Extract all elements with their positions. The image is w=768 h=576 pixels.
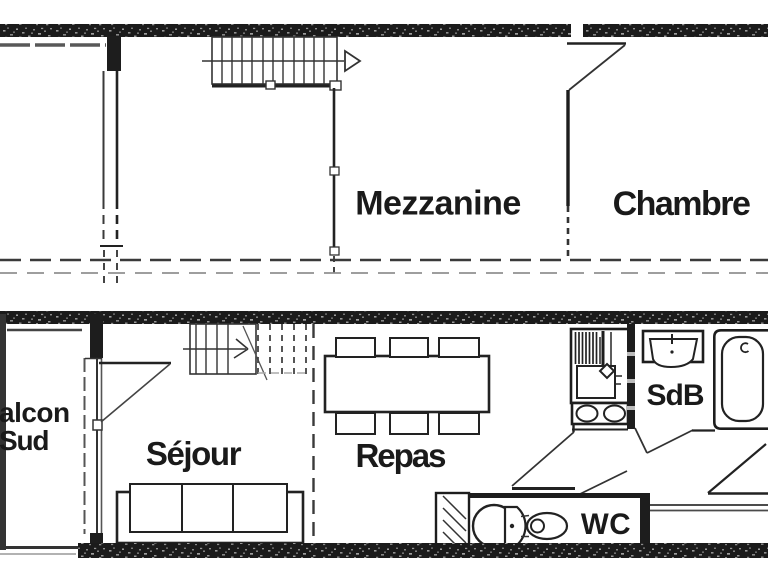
svg-text:alcon: alcon: [0, 397, 70, 428]
svg-text:Mezzanine: Mezzanine: [355, 185, 521, 223]
svg-text:SdB: SdB: [647, 379, 704, 412]
svg-text:Repas: Repas: [355, 437, 445, 474]
svg-text:WC: WC: [581, 508, 631, 541]
svg-text:Chambre: Chambre: [613, 185, 750, 223]
svg-text:Séjour: Séjour: [146, 435, 242, 472]
svg-text:Sud: Sud: [0, 425, 48, 456]
